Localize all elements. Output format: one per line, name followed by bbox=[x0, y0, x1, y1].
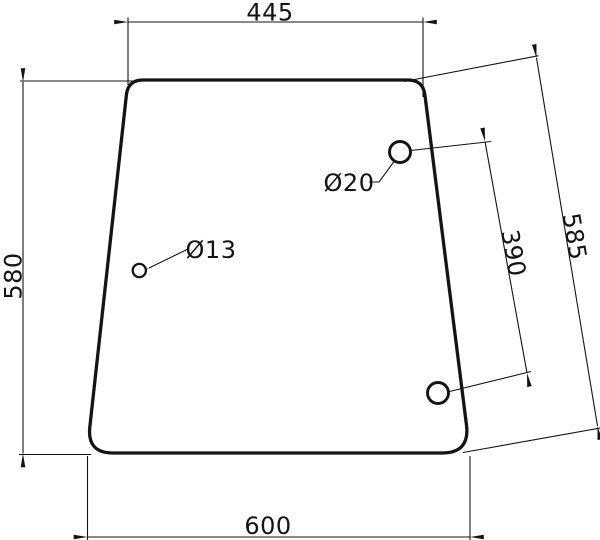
ext-line-right-bottom bbox=[463, 428, 600, 453]
dimension-lines bbox=[23, 22, 598, 537]
dim-label-hole-spacing: 390 bbox=[495, 227, 531, 278]
dim-label-top-width: 445 bbox=[246, 0, 293, 27]
hole-small-left bbox=[133, 264, 146, 277]
ext-line-hole-top bbox=[411, 142, 492, 151]
technical-drawing-canvas: 445 580 600 585 390 Ø13 Ø20 bbox=[0, 0, 600, 540]
ext-line-right-top bbox=[404, 56, 539, 82]
mounting-holes bbox=[133, 142, 449, 404]
leader-line-hole-13 bbox=[149, 249, 189, 269]
dim-label-left-height: 580 bbox=[0, 252, 28, 299]
dim-label-bottom-width: 600 bbox=[244, 512, 291, 540]
dim-label-right-edge: 585 bbox=[557, 211, 592, 262]
hole-large-bottom bbox=[428, 383, 449, 404]
hole-callout-large: Ø20 bbox=[324, 169, 375, 197]
hole-callout-small: Ø13 bbox=[186, 236, 237, 264]
hole-large-top bbox=[390, 142, 411, 163]
panel-outline bbox=[90, 80, 467, 453]
